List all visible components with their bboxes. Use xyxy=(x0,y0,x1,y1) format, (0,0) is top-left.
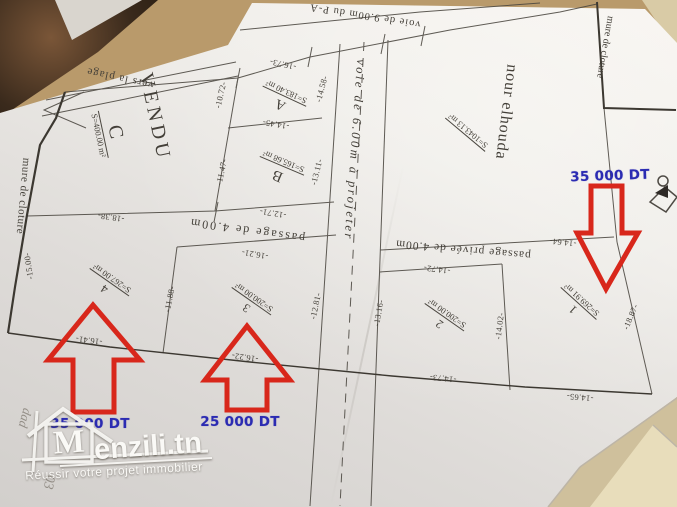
logo-pole-icon xyxy=(33,411,37,472)
watermark-logo xyxy=(0,0,677,507)
photo-of-land-survey-plan: voie de 9.00m du P-A vers la plage voie … xyxy=(0,0,677,507)
logo-letter: M xyxy=(52,423,86,462)
